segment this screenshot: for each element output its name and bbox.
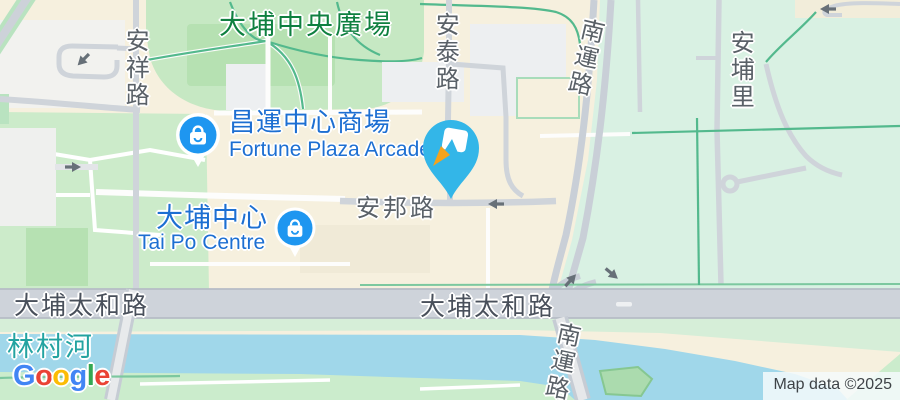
road-label-on-pong: 安邦路 — [356, 196, 437, 221]
road-label-on-tai: 安泰路 — [432, 12, 457, 93]
park-label-central-plaza[interactable]: 大埔中央廣場 — [219, 11, 393, 39]
map-canvas[interactable]: 大埔中央廣場 安祥路 安泰路 南運路 安埔里 昌運中心商場 Fortune Pl… — [0, 0, 900, 400]
google-logo[interactable]: Google — [13, 360, 110, 393]
poi-label-tai-po-centre-en[interactable]: Tai Po Centre — [138, 232, 265, 254]
poi-label-tai-po-centre-zh[interactable]: 大埔中心 — [156, 204, 268, 232]
block-nw — [0, 20, 125, 108]
road-label-tai-po-tai-wo-center: 大埔太和路 — [420, 294, 555, 320]
river-island — [600, 367, 652, 396]
poi-label-fortune-plaza-zh[interactable]: 昌運中心商場 — [229, 109, 391, 136]
block-w2 — [0, 128, 56, 226]
river-label-lam-tsuen: 林村河 — [7, 333, 94, 361]
poi-label-fortune-plaza-en[interactable]: Fortune Plaza Arcade — [229, 139, 431, 161]
road-label-on-po-lane: 安埔里 — [727, 30, 752, 111]
road-label-on-cheung: 安祥路 — [122, 28, 147, 109]
map-attribution: Map data ©2025 — [763, 372, 900, 400]
attribution-text: Map data ©2025 — [773, 376, 892, 393]
road-label-tai-po-tai-wo-west: 大埔太和路 — [14, 293, 149, 319]
park-west-lawn — [26, 228, 88, 286]
